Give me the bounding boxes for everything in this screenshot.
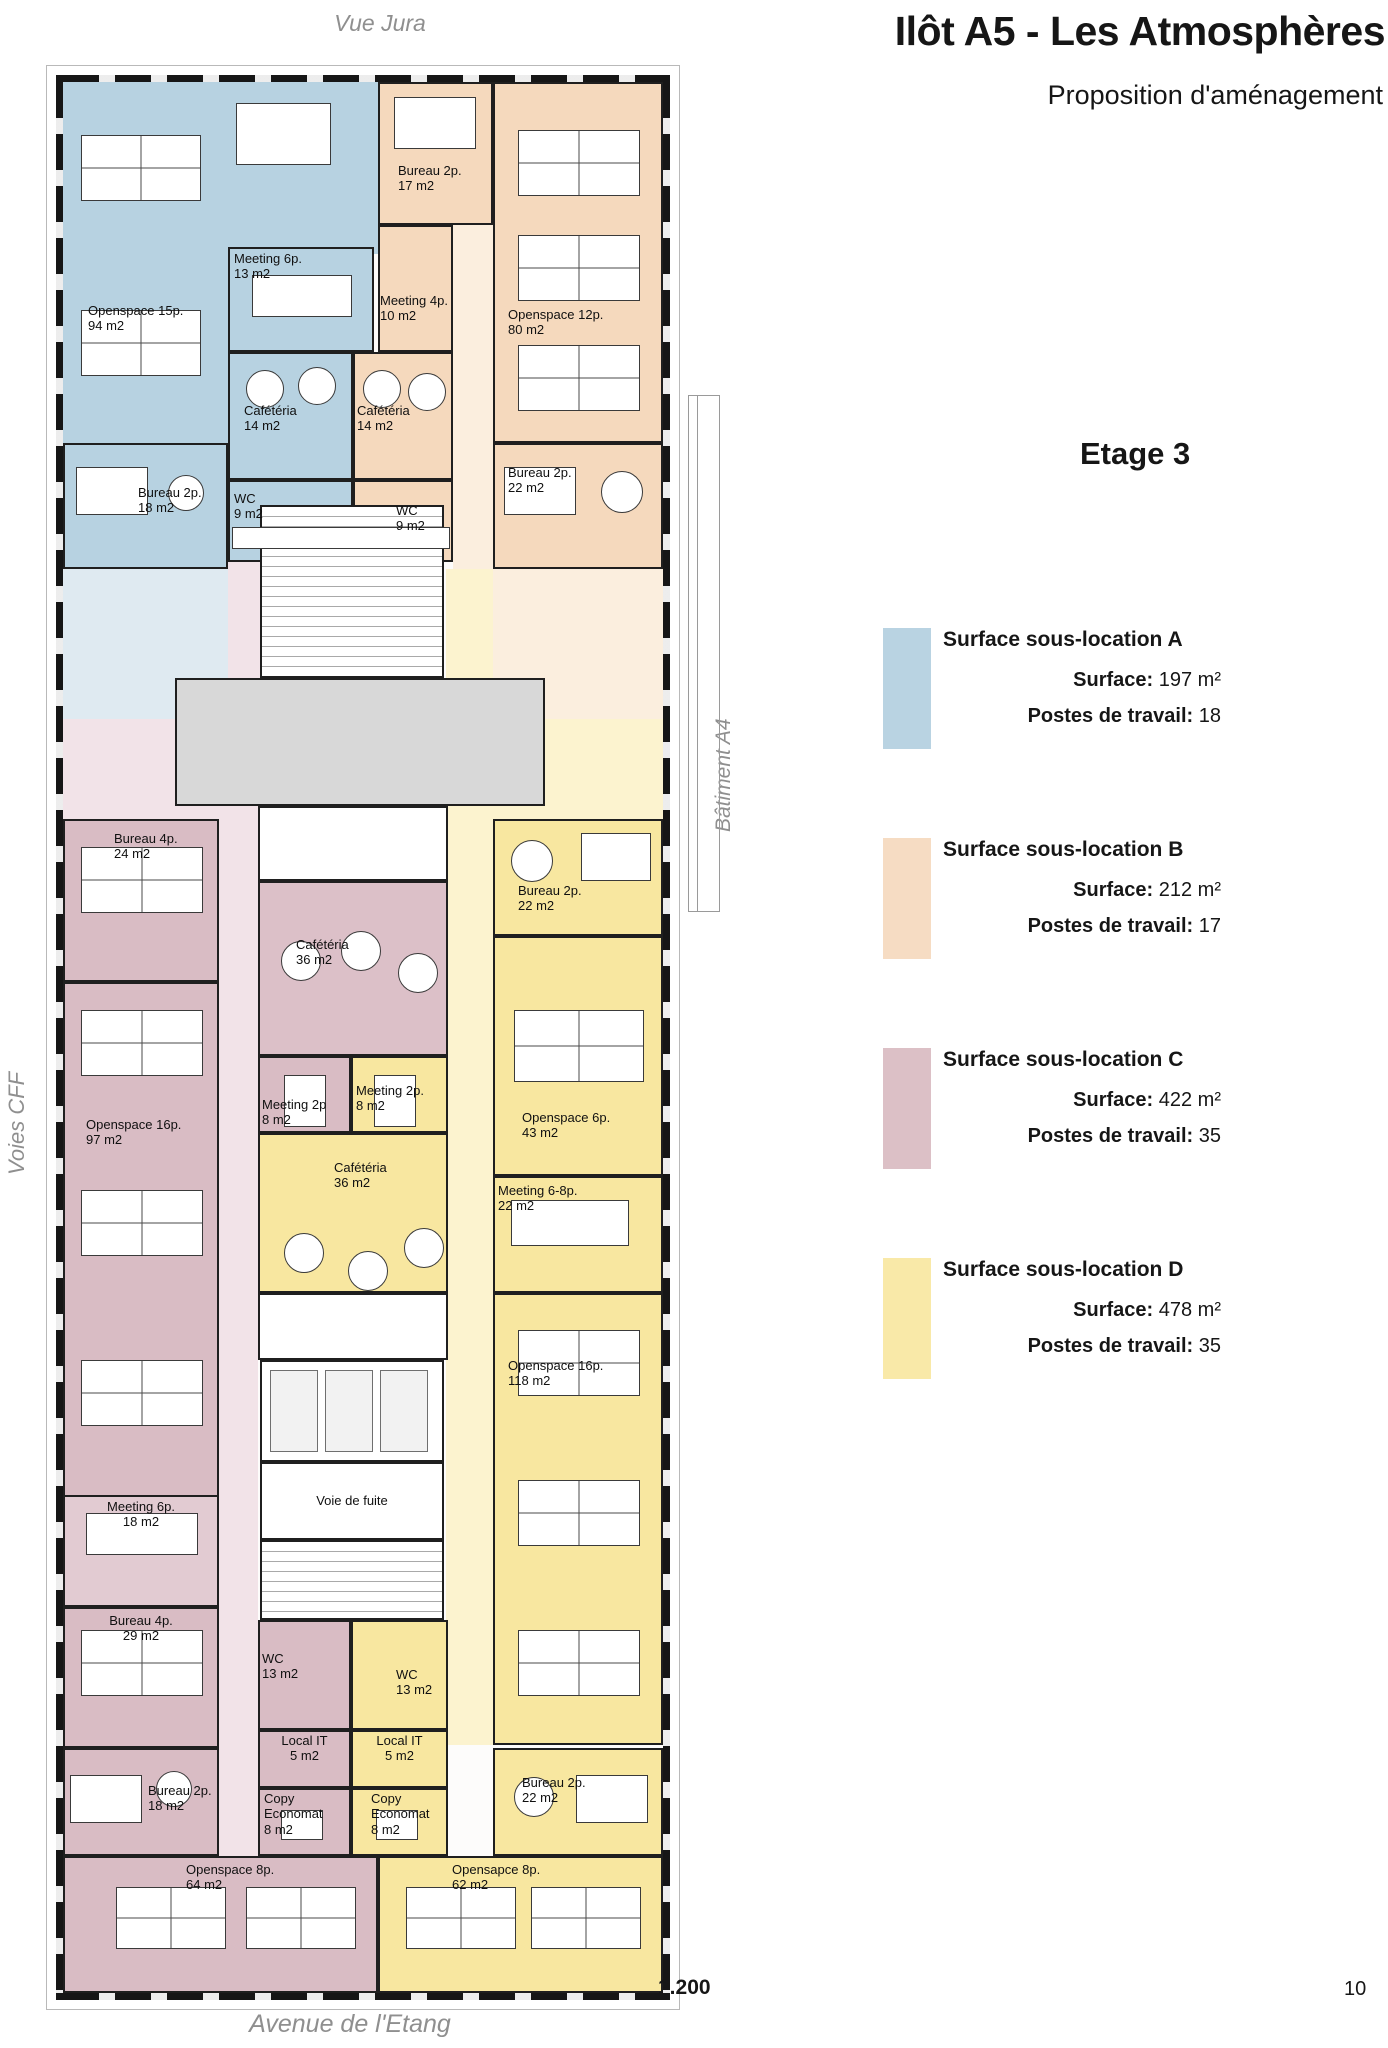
- window-band-right: [663, 82, 670, 1993]
- legend-postes-label: Postes de travail:: [1028, 915, 1199, 937]
- desk-cluster: [518, 1630, 640, 1696]
- floor-plan: Openspace 15p. 94 m2Meeting 6p. 13 m2Caf…: [56, 75, 670, 2000]
- round-table: [408, 373, 446, 411]
- room-label-meeting-6p-13: Meeting 6p. 13 m2: [234, 251, 302, 282]
- legend-postes-value: 35: [1199, 1335, 1221, 1357]
- legend-swatch-A: [883, 628, 931, 749]
- round-table: [404, 1228, 444, 1268]
- room-label-cafeteria-14-b: Cafétéria 14 m2: [357, 403, 410, 434]
- room-label-bureau-2p-22-b: Bureau 2p. 22 m2: [508, 465, 572, 496]
- page-subtitle: Proposition d'aménagement: [783, 80, 1383, 111]
- legend-surface-value: 212 m²: [1159, 879, 1221, 901]
- elevator: [380, 1370, 428, 1452]
- round-table: [511, 840, 553, 882]
- room-label-meeting-2p-c: Meeting 2p 8 m2: [262, 1097, 326, 1128]
- elevator: [325, 1370, 373, 1452]
- legend-text-C: Surface sous-location CSurface: 422 m²Po…: [943, 1048, 1221, 1161]
- room-label-cafeteria-14-a: Cafétéria 14 m2: [244, 403, 297, 434]
- room-label-wc-13-d: WC 13 m2: [396, 1667, 432, 1698]
- legend-surface-label: Surface:: [1073, 879, 1159, 901]
- vue-jura-label: Vue Jura: [300, 10, 460, 37]
- room-corridor-c-lower: [219, 819, 258, 1856]
- room-label-bureau-4p-24: Bureau 4p. 24 m2: [114, 831, 178, 862]
- legend-postes-value: 18: [1199, 705, 1221, 727]
- room-label-voie-de-fuite: Voie de fuite: [260, 1493, 444, 1508]
- page-title: Ilôt A5 - Les Atmosphères: [625, 8, 1385, 55]
- room-label-local-it-c: Local IT 5 m2: [258, 1733, 351, 1764]
- desk-cluster: [81, 135, 201, 201]
- room-label-wc-13-c: WC 13 m2: [262, 1651, 298, 1682]
- round-table: [398, 953, 438, 993]
- room-label-cafeteria-36-c: Cafétéria 36 m2: [296, 937, 349, 968]
- legend-postes-line: Postes de travail: 35: [943, 1335, 1221, 1358]
- window-band-bottom: [63, 1993, 663, 2000]
- desk: [581, 833, 651, 881]
- room-label-copy-economat-d: Copy Economat 8 m2: [371, 1791, 430, 1837]
- legend-title: Surface sous-location B: [943, 838, 1221, 862]
- document-page: Vue Jura Voies CFF Bâtiment A4 Avenue de…: [0, 0, 1388, 2048]
- desk: [236, 103, 331, 165]
- legend-swatch-C: [883, 1048, 931, 1169]
- legend-swatch-B: [883, 838, 931, 959]
- desk-cluster: [514, 1010, 644, 1082]
- desk-cluster: [246, 1887, 356, 1949]
- legend-swatch-D: [883, 1258, 931, 1379]
- room-label-opensapce-8p-62: Opensapce 8p. 62 m2: [452, 1862, 540, 1893]
- avenue-de-letang-label: Avenue de l'Etang: [230, 2010, 470, 2039]
- room-label-bureau-2p-22-d-top: Bureau 2p. 22 m2: [518, 883, 582, 914]
- legend-surface-value: 422 m²: [1159, 1089, 1221, 1111]
- legend-item-C: Surface sous-location CSurface: 422 m²Po…: [883, 1048, 1223, 1174]
- room-label-bureau-2p-17: Bureau 2p. 17 m2: [398, 163, 462, 194]
- floor-label: Etage 3: [1080, 436, 1190, 472]
- room-meeting-4p-10: [378, 225, 453, 352]
- room-stairs-bottom: [260, 1540, 444, 1620]
- legend-title: Surface sous-location D: [943, 1258, 1221, 1282]
- round-table: [284, 1233, 324, 1273]
- legend-postes-label: Postes de travail:: [1028, 1335, 1199, 1357]
- room-label-cafeteria-36-d: Cafétéria 36 m2: [334, 1160, 387, 1191]
- legend-postes-line: Postes de travail: 35: [943, 1125, 1221, 1148]
- room-core-mid: [258, 1293, 448, 1360]
- legend-postes-label: Postes de travail:: [1028, 705, 1199, 727]
- room-label-copy-economat-c: Copy Economat 8 m2: [264, 1791, 323, 1837]
- legend-surface-line: Surface: 422 m²: [943, 1089, 1221, 1112]
- legend-item-D: Surface sous-location DSurface: 478 m²Po…: [883, 1258, 1223, 1384]
- room-label-bureau-2p-22-d: Bureau 2p. 22 m2: [522, 1775, 586, 1806]
- legend-text-B: Surface sous-location BSurface: 212 m²Po…: [943, 838, 1221, 951]
- room-label-openspace-8p-64: Openspace 8p. 64 m2: [186, 1862, 274, 1893]
- desk-cluster: [116, 1887, 226, 1949]
- room-label-openspace-16p-118: Openspace 16p. 118 m2: [508, 1358, 603, 1389]
- legend-surface-label: Surface:: [1073, 1299, 1159, 1321]
- room-label-openspace-16p-97: Openspace 16p. 97 m2: [86, 1117, 181, 1148]
- window-band-top: [63, 75, 663, 82]
- legend-surface-value: 478 m²: [1159, 1299, 1221, 1321]
- desk-cluster: [81, 1010, 203, 1076]
- room-label-bureau-2p-18-a: Bureau 2p. 18 m2: [138, 485, 202, 516]
- legend-surface-line: Surface: 212 m²: [943, 879, 1221, 902]
- desk-cluster: [518, 130, 640, 196]
- legend-text-D: Surface sous-location DSurface: 478 m²Po…: [943, 1258, 1221, 1371]
- room-label-wc-9-b: WC 9 m2: [396, 503, 425, 534]
- desk: [394, 97, 476, 149]
- legend-title: Surface sous-location A: [943, 628, 1221, 652]
- scale-label: 1.200: [658, 1976, 711, 2000]
- legend-item-B: Surface sous-location BSurface: 212 m²Po…: [883, 838, 1223, 964]
- round-table: [348, 1251, 388, 1291]
- legend-text-A: Surface sous-location ASurface: 197 m²Po…: [943, 628, 1221, 741]
- room-label-openspace-12p: Openspace 12p. 80 m2: [508, 307, 603, 338]
- legend-surface-label: Surface:: [1073, 1089, 1159, 1111]
- desk-cluster: [81, 1190, 203, 1256]
- room-label-bureau-2p-18-c: Bureau 2p. 18 m2: [148, 1783, 212, 1814]
- legend-surface-line: Surface: 197 m²: [943, 669, 1221, 692]
- room-label-meeting-6-8p-22: Meeting 6-8p. 22 m2: [498, 1183, 578, 1214]
- round-table: [601, 471, 643, 513]
- desk-cluster: [531, 1887, 641, 1949]
- room-core-landing: [258, 806, 448, 881]
- desk-cluster: [81, 1360, 203, 1426]
- room-label-meeting-6p-18: Meeting 6p. 18 m2: [63, 1499, 219, 1530]
- voies-cff-label: Voies CFF: [4, 945, 30, 1175]
- desk-cluster: [406, 1887, 516, 1949]
- room-label-local-it-d: Local IT 5 m2: [351, 1733, 448, 1764]
- legend-item-A: Surface sous-location ASurface: 197 m²Po…: [883, 628, 1223, 754]
- legend-postes-label: Postes de travail:: [1028, 1125, 1199, 1147]
- desk: [576, 1775, 648, 1823]
- desk-cluster: [518, 235, 640, 301]
- desk: [70, 1775, 142, 1823]
- page-number: 10: [1344, 1978, 1366, 2001]
- room-entry-hall: [175, 678, 545, 806]
- room-label-meeting-2p-d: Meeting 2p. 8 m2: [356, 1083, 424, 1114]
- window-band-left: [56, 82, 63, 1993]
- legend-surface-value: 197 m²: [1159, 669, 1221, 691]
- room-label-openspace-15p: Openspace 15p. 94 m2: [88, 303, 183, 334]
- room-label-openspace-6p-43: Openspace 6p. 43 m2: [522, 1110, 610, 1141]
- round-table: [298, 367, 336, 405]
- legend-postes-value: 35: [1199, 1125, 1221, 1147]
- room-label-bureau-4p-29: Bureau 4p. 29 m2: [63, 1613, 219, 1644]
- elevator: [270, 1370, 318, 1452]
- room-label-meeting-4p-10: Meeting 4p. 10 m2: [380, 293, 448, 324]
- legend-postes-value: 17: [1199, 915, 1221, 937]
- desk-cluster: [518, 1480, 640, 1546]
- legend-surface-line: Surface: 478 m²: [943, 1299, 1221, 1322]
- room-label-wc-9-a: WC 9 m2: [234, 491, 263, 522]
- legend-title: Surface sous-location C: [943, 1048, 1221, 1072]
- legend-postes-line: Postes de travail: 17: [943, 915, 1221, 938]
- desk-cluster: [518, 345, 640, 411]
- batiment-a4-outline: [688, 395, 720, 912]
- legend-surface-label: Surface:: [1073, 669, 1159, 691]
- legend-postes-line: Postes de travail: 18: [943, 705, 1221, 728]
